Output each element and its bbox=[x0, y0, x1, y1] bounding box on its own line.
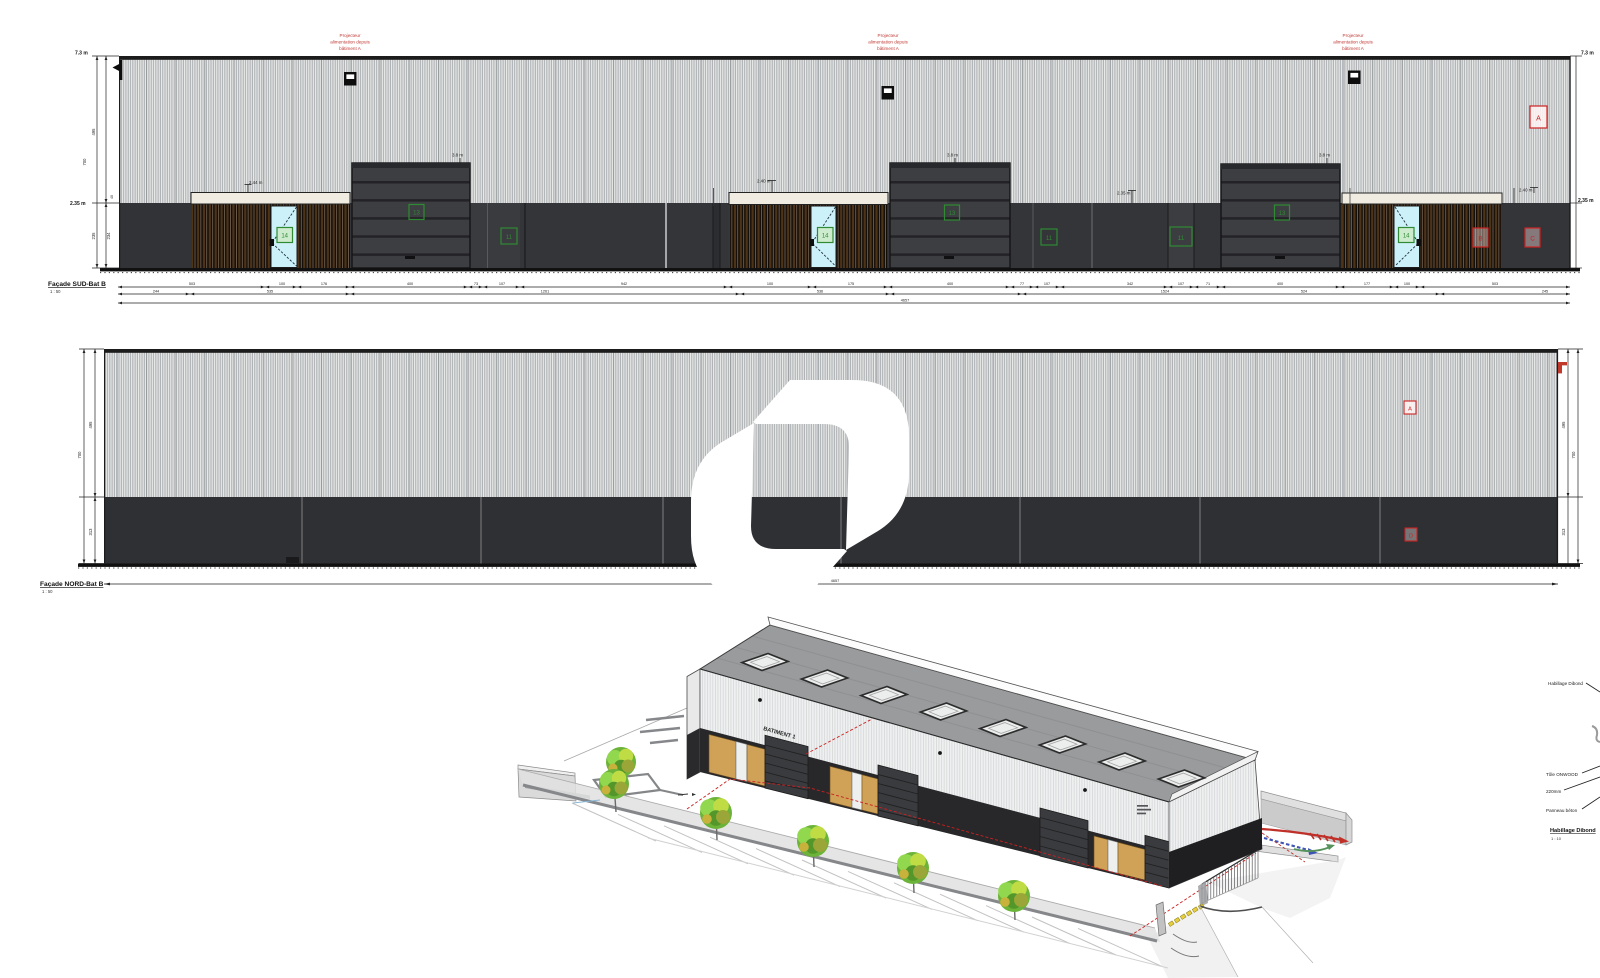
svg-text:Projecteur: Projecteur bbox=[340, 33, 361, 38]
svg-text:1 : 10: 1 : 10 bbox=[1551, 836, 1562, 841]
svg-text:495: 495 bbox=[88, 421, 93, 429]
svg-text:A: A bbox=[1536, 116, 1541, 123]
svg-text:11: 11 bbox=[506, 235, 513, 241]
svg-text:13: 13 bbox=[949, 211, 956, 217]
svg-text:177: 177 bbox=[1364, 282, 1370, 286]
svg-text:235: 235 bbox=[91, 232, 96, 240]
svg-text:2.35 m: 2.35 m bbox=[1117, 191, 1131, 196]
svg-text:4657: 4657 bbox=[901, 299, 909, 303]
svg-text:535: 535 bbox=[267, 290, 273, 294]
svg-text:176: 176 bbox=[321, 282, 327, 286]
svg-text:2.40 m: 2.40 m bbox=[1519, 188, 1533, 193]
svg-text:2.40 m: 2.40 m bbox=[757, 179, 771, 184]
svg-text:bâtiment A: bâtiment A bbox=[339, 46, 362, 51]
svg-text:700: 700 bbox=[77, 451, 82, 459]
svg-text:503: 503 bbox=[1492, 282, 1498, 286]
svg-text:2.35 m: 2.35 m bbox=[1578, 198, 1594, 204]
svg-text:4657: 4657 bbox=[831, 579, 839, 583]
svg-text:Projecteur: Projecteur bbox=[1343, 33, 1364, 38]
svg-text:7.3 m: 7.3 m bbox=[75, 51, 88, 57]
svg-text:77: 77 bbox=[1020, 282, 1024, 286]
svg-text:524: 524 bbox=[1301, 290, 1307, 294]
svg-text:107: 107 bbox=[1044, 282, 1050, 286]
svg-text:14: 14 bbox=[281, 234, 288, 240]
svg-text:1 : 50: 1 : 50 bbox=[50, 289, 61, 294]
svg-text:495: 495 bbox=[1561, 421, 1566, 429]
svg-text:503: 503 bbox=[189, 282, 195, 286]
svg-text:Façade NORD-Bat B: Façade NORD-Bat B bbox=[40, 581, 104, 588]
svg-text:B: B bbox=[1478, 236, 1482, 243]
svg-text:D: D bbox=[1409, 534, 1413, 540]
svg-text:400: 400 bbox=[947, 282, 953, 286]
svg-text:13: 13 bbox=[1279, 211, 1286, 217]
svg-text:2.44 m: 2.44 m bbox=[249, 180, 263, 185]
svg-text:40: 40 bbox=[110, 195, 114, 199]
svg-text:400: 400 bbox=[1277, 282, 1283, 286]
svg-text:Panneau béton: Panneau béton bbox=[1546, 808, 1578, 813]
svg-text:13: 13 bbox=[413, 211, 420, 217]
svg-text:495: 495 bbox=[91, 128, 96, 136]
svg-text:245: 245 bbox=[1542, 290, 1548, 294]
svg-text:A: A bbox=[1408, 407, 1412, 413]
svg-text:11: 11 bbox=[1178, 235, 1185, 242]
svg-text:3.8 m: 3.8 m bbox=[452, 153, 463, 158]
svg-text:220mm: 220mm bbox=[1546, 789, 1561, 794]
svg-text:942: 942 bbox=[621, 282, 627, 286]
svg-text:234: 234 bbox=[106, 232, 111, 240]
svg-text:11: 11 bbox=[1046, 236, 1053, 242]
svg-text:3.8 m: 3.8 m bbox=[1319, 153, 1330, 158]
svg-text:244: 244 bbox=[153, 290, 159, 294]
svg-text:73: 73 bbox=[474, 282, 478, 286]
svg-text:175: 175 bbox=[848, 282, 854, 286]
svg-text:Habillage Dibond: Habillage Dibond bbox=[1550, 828, 1596, 834]
svg-text:2.35 m: 2.35 m bbox=[70, 201, 86, 207]
svg-text:71: 71 bbox=[1206, 282, 1210, 286]
svg-text:1261: 1261 bbox=[541, 290, 549, 294]
svg-text:Habillage Dibond: Habillage Dibond bbox=[1548, 681, 1583, 686]
svg-text:313: 313 bbox=[1561, 528, 1566, 536]
svg-text:bâtiment A: bâtiment A bbox=[1342, 46, 1365, 51]
svg-text:1524: 1524 bbox=[1161, 290, 1169, 294]
svg-text:Façade SUD-Bat B: Façade SUD-Bat B bbox=[48, 281, 106, 288]
svg-text:Projecteur: Projecteur bbox=[878, 33, 899, 38]
svg-text:100: 100 bbox=[767, 282, 773, 286]
svg-text:342: 342 bbox=[1127, 282, 1133, 286]
svg-text:313: 313 bbox=[88, 528, 93, 536]
svg-text:3.8 m: 3.8 m bbox=[947, 153, 958, 158]
svg-text:14: 14 bbox=[822, 234, 829, 240]
svg-text:536: 536 bbox=[817, 290, 823, 294]
svg-text:107: 107 bbox=[1178, 282, 1184, 286]
svg-text:alimentation depuis: alimentation depuis bbox=[868, 40, 908, 45]
svg-text:400: 400 bbox=[407, 282, 413, 286]
svg-text:107: 107 bbox=[499, 282, 505, 286]
svg-text:7.3 m: 7.3 m bbox=[1581, 51, 1594, 57]
svg-text:700: 700 bbox=[82, 158, 87, 166]
svg-text:14: 14 bbox=[1403, 234, 1410, 240]
svg-text:100: 100 bbox=[279, 282, 285, 286]
svg-text:100: 100 bbox=[1404, 282, 1410, 286]
svg-text:bâtiment A: bâtiment A bbox=[877, 46, 900, 51]
svg-text:alimentation depuis: alimentation depuis bbox=[1333, 40, 1373, 45]
svg-text:700: 700 bbox=[1571, 451, 1576, 459]
svg-text:1 : 50: 1 : 50 bbox=[42, 589, 53, 594]
svg-text:Tôle ONWOOD: Tôle ONWOOD bbox=[1546, 772, 1579, 777]
svg-text:C: C bbox=[1530, 236, 1535, 243]
svg-text:alimentation depuis: alimentation depuis bbox=[330, 40, 370, 45]
